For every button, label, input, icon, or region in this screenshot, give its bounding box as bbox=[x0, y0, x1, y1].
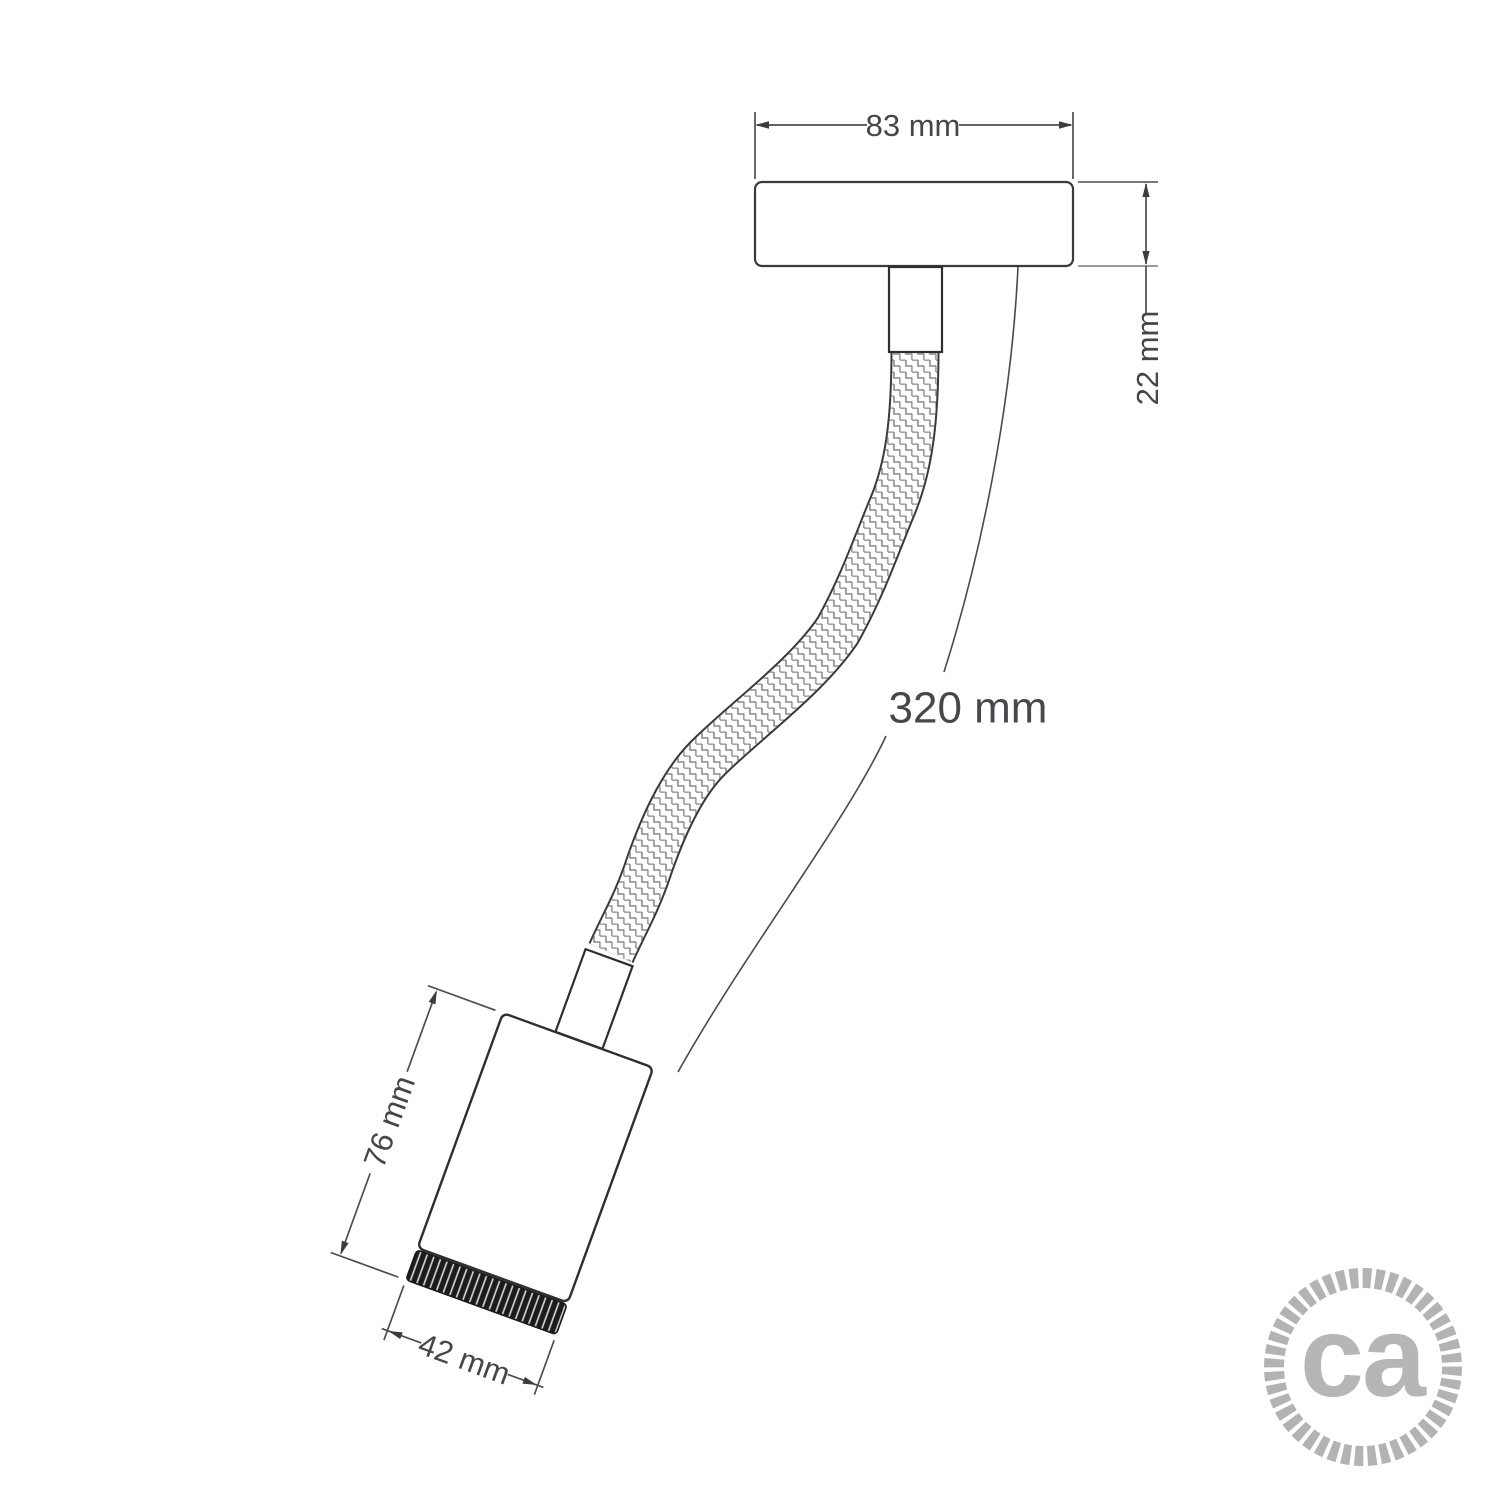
flexible-arm bbox=[611, 350, 915, 953]
label-body-height: 76 mm bbox=[357, 1071, 422, 1172]
arm-braid-texture bbox=[611, 350, 915, 953]
ferrule-body bbox=[555, 949, 632, 1049]
dim-arm-length-curve bbox=[678, 267, 1018, 1072]
dimension-drawing: 83 mm 22 mm 320 mm bbox=[0, 0, 1500, 1500]
logo-text: ca bbox=[1300, 1293, 1427, 1421]
arrowhead-up bbox=[429, 989, 441, 1005]
label-canopy-width: 83 mm bbox=[866, 108, 961, 143]
ferrule bbox=[555, 949, 632, 1049]
arrowhead-up bbox=[1142, 183, 1149, 197]
ceiling-canopy bbox=[755, 182, 1073, 266]
brand-logo: ca bbox=[1262, 1266, 1463, 1467]
arrowhead-right bbox=[522, 1377, 538, 1389]
lamp-body bbox=[417, 1013, 653, 1303]
arrowhead-down bbox=[1142, 251, 1149, 265]
leader-curve-upper bbox=[944, 267, 1018, 672]
arrowhead-left bbox=[387, 1328, 403, 1340]
label-arm-length: 320 mm bbox=[889, 683, 1048, 732]
extension-line bbox=[428, 986, 496, 1011]
lamp-holder-group: 76 mm 42 mm bbox=[299, 983, 659, 1404]
drawing-canvas: 83 mm 22 mm 320 mm bbox=[0, 0, 1500, 1500]
arrowhead-left bbox=[755, 121, 769, 128]
label-body-diameter: 42 mm bbox=[414, 1326, 515, 1391]
label-canopy-height: 22 mm bbox=[1130, 311, 1165, 406]
extension-line bbox=[331, 1253, 399, 1278]
arrowhead-down bbox=[337, 1241, 349, 1257]
extension-line bbox=[534, 1340, 554, 1395]
dimension-line bbox=[407, 992, 436, 1072]
dimension-line bbox=[341, 1173, 370, 1253]
dim-canopy-height bbox=[1078, 182, 1158, 314]
arrowhead-right bbox=[1059, 121, 1073, 128]
canopy-stem bbox=[889, 267, 942, 352]
